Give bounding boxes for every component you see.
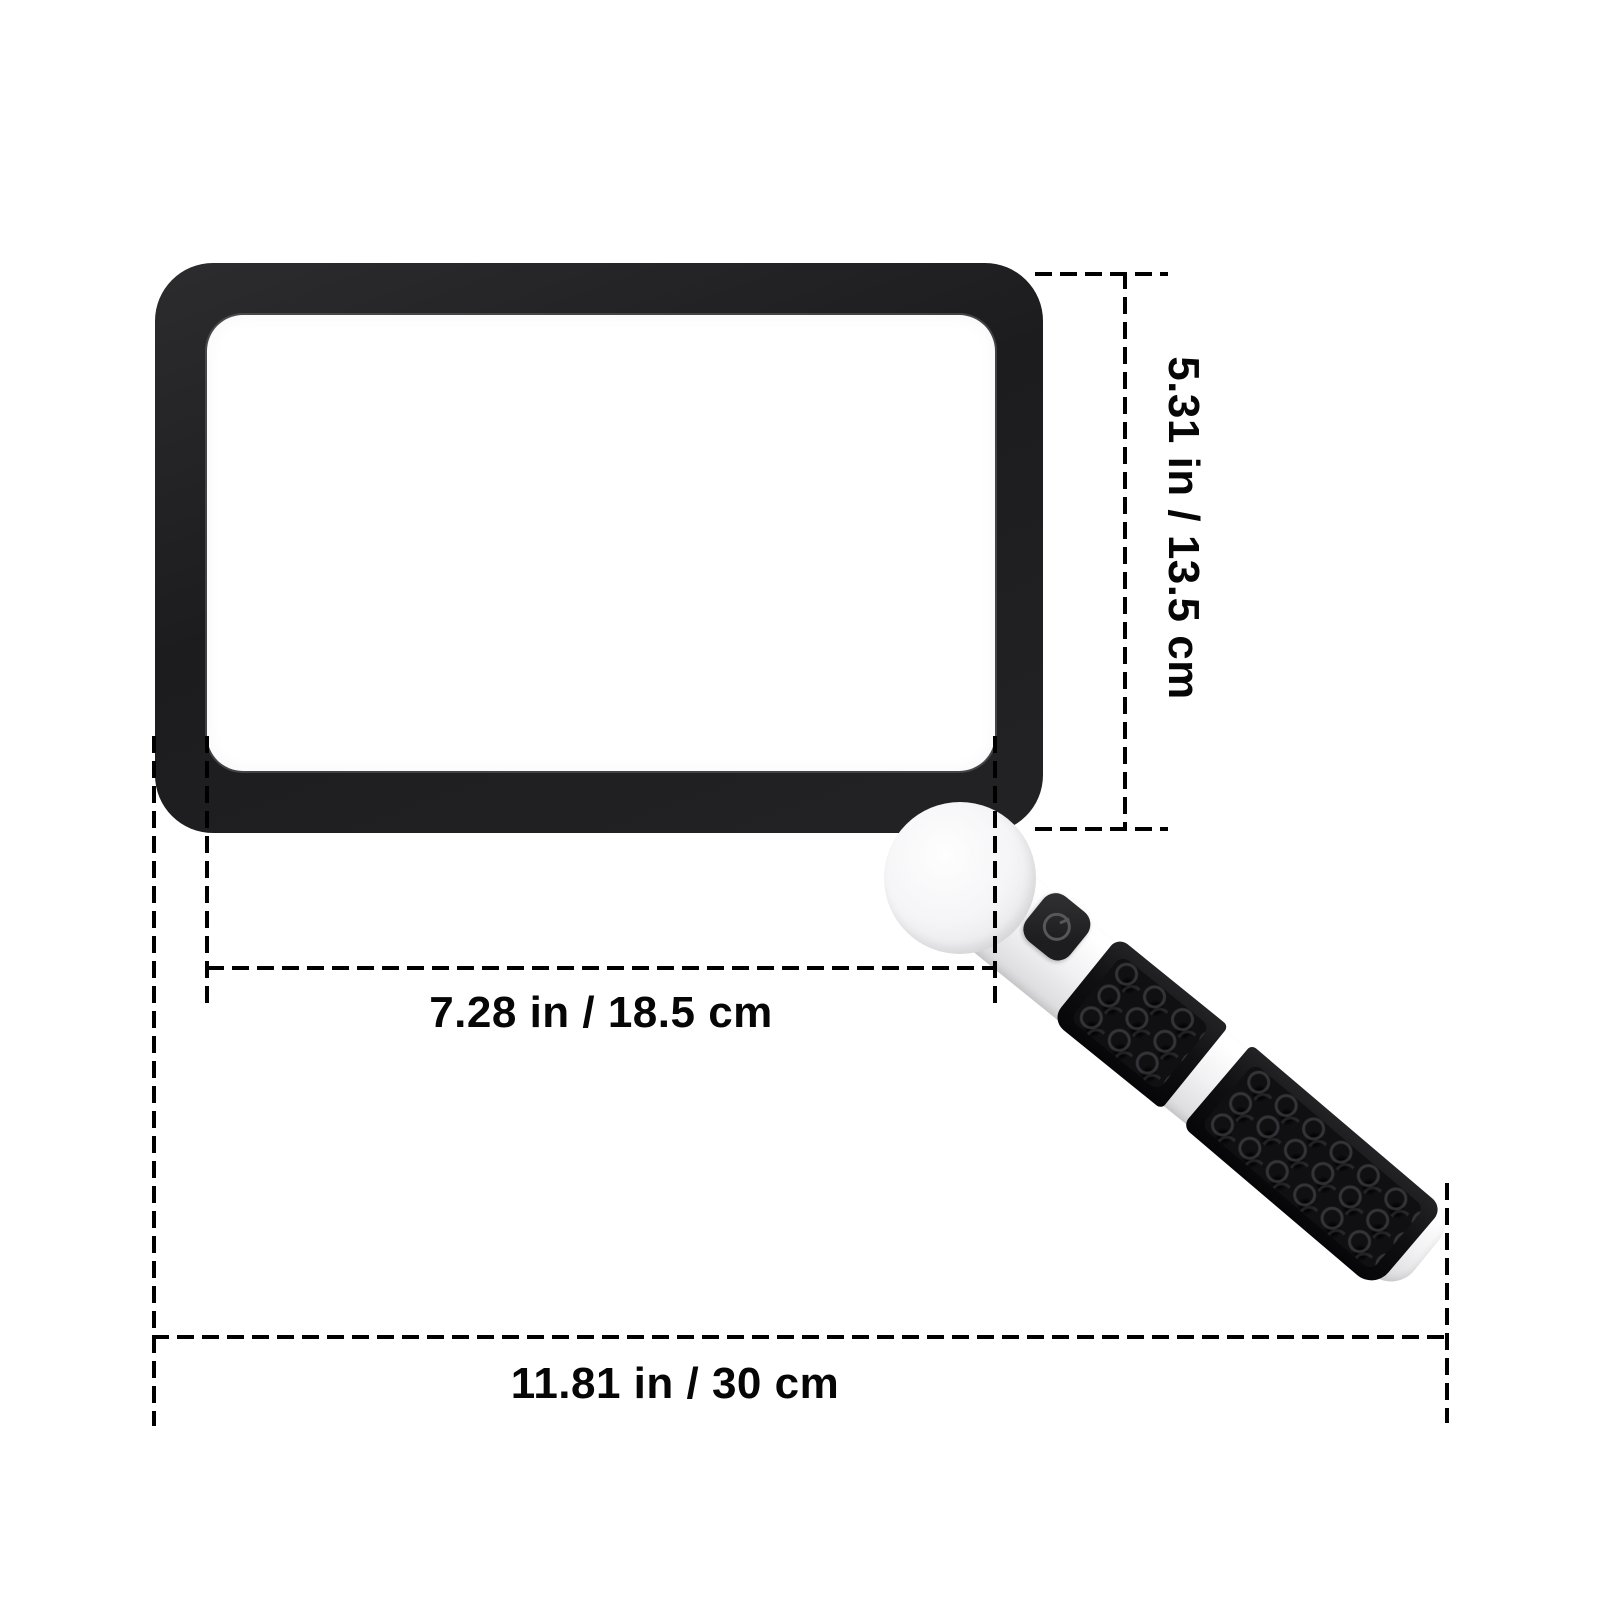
magnifier-lens	[207, 315, 995, 771]
height-dimension-label: 5.31 in / 13.5 cm	[1158, 356, 1208, 700]
handle-grip-lower	[1182, 1045, 1443, 1290]
total-length-dimension-line	[152, 1335, 1449, 1339]
handle-pivot-disc	[884, 802, 1036, 954]
height-extension-line-bottom	[1035, 827, 1168, 831]
height-extension-line-top	[1035, 272, 1168, 276]
product-dimension-diagram: 5.31 in / 13.5 cm 7.28 in / 18.5 cm 11.8…	[0, 0, 1600, 1600]
total-length-extension-line-left	[152, 736, 156, 1426]
lens-width-dimension-line	[207, 966, 995, 970]
magnifier-frame	[155, 263, 1043, 833]
total-length-extension-line-right	[1445, 1183, 1449, 1423]
total-length-dimension-label: 11.81 in / 30 cm	[511, 1359, 839, 1409]
height-dimension-line	[1123, 272, 1127, 831]
power-icon	[1037, 907, 1076, 946]
lens-width-dimension-label: 7.28 in / 18.5 cm	[429, 988, 773, 1038]
